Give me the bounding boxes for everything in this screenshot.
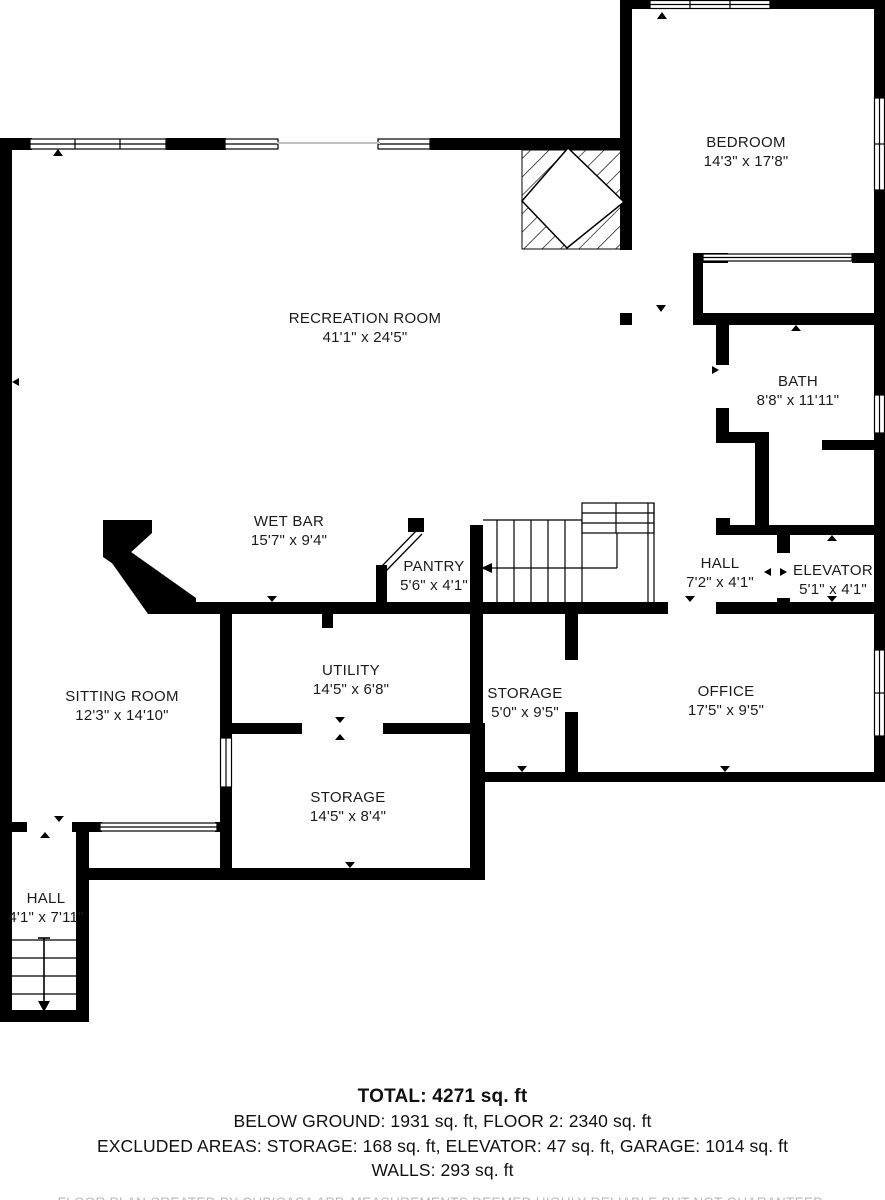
room-label-elevator: ELEVATOR 5'1" x 4'1"	[793, 561, 873, 599]
room-name: UTILITY	[313, 661, 389, 680]
room-label-bedroom: BEDROOM 14'3" x 17'8"	[704, 133, 789, 171]
room-label-wet-bar: WET BAR 15'7" x 9'4"	[251, 512, 327, 550]
excluded-areas-text: EXCLUDED AREAS: STORAGE: 168 sq. ft, ELE…	[0, 1136, 885, 1157]
room-label-office: OFFICE 17'5" x 9'5"	[688, 682, 764, 720]
staircase-main	[481, 503, 654, 608]
room-label-storage-small: STORAGE 5'0" x 9'5"	[487, 684, 562, 722]
room-label-bath: BATH 8'8" x 11'11"	[757, 372, 840, 410]
room-name: PANTRY	[400, 557, 468, 576]
room-name: STORAGE	[487, 684, 562, 703]
room-name: HALL	[8, 889, 83, 908]
room-name: ELEVATOR	[793, 561, 873, 580]
room-label-hall: HALL 7'2" x 4'1"	[686, 554, 754, 592]
total-area-text: TOTAL: 4271 sq. ft	[0, 1086, 885, 1108]
room-dimensions: 5'0" x 9'5"	[487, 703, 562, 722]
room-label-hall-lower: HALL 4'1" x 7'11"	[8, 889, 83, 927]
room-dimensions: 15'7" x 9'4"	[251, 531, 327, 550]
room-dimensions: 4'1" x 7'11"	[8, 908, 83, 927]
floor-areas-text: BELOW GROUND: 1931 sq. ft, FLOOR 2: 2340…	[0, 1111, 885, 1132]
room-dimensions: 17'5" x 9'5"	[688, 701, 764, 720]
room-dimensions: 5'6" x 4'1"	[400, 576, 468, 595]
room-dimensions: 12'3" x 14'10"	[65, 706, 179, 725]
room-dimensions: 14'3" x 17'8"	[704, 152, 789, 171]
room-name: STORAGE	[310, 788, 386, 807]
room-name: RECREATION ROOM	[289, 309, 442, 328]
room-name: SITTING ROOM	[65, 687, 179, 706]
room-dimensions: 14'5" x 6'8"	[313, 680, 389, 699]
room-name: BATH	[757, 372, 840, 391]
staircase-hall	[12, 938, 76, 1012]
room-label-recreation-room: RECREATION ROOM 41'1" x 24'5"	[289, 309, 442, 347]
room-name: HALL	[686, 554, 754, 573]
room-name: WET BAR	[251, 512, 327, 531]
room-dimensions: 7'2" x 4'1"	[686, 573, 754, 592]
room-label-sitting-room: SITTING ROOM 12'3" x 14'10"	[65, 687, 179, 725]
room-name: BEDROOM	[704, 133, 789, 152]
room-dimensions: 14'5" x 8'4"	[310, 807, 386, 826]
fireplace	[522, 148, 625, 249]
room-dimensions: 41'1" x 24'5"	[289, 328, 442, 347]
room-dimensions: 8'8" x 11'11"	[757, 391, 840, 410]
area-summary: TOTAL: 4271 sq. ft BELOW GROUND: 1931 sq…	[0, 1086, 885, 1200]
room-label-utility: UTILITY 14'5" x 6'8"	[313, 661, 389, 699]
walls-area-text: WALLS: 293 sq. ft	[0, 1160, 885, 1181]
room-label-pantry: PANTRY 5'6" x 4'1"	[400, 557, 468, 595]
floor-plan-page: BEDROOM 14'3" x 17'8" RECREATION ROOM 41…	[0, 0, 885, 1200]
disclaimer-text: FLOOR PLAN CREATED BY CUBICASA APP. MEAS…	[0, 1195, 885, 1200]
room-dimensions: 5'1" x 4'1"	[793, 580, 873, 599]
room-label-storage-large: STORAGE 14'5" x 8'4"	[310, 788, 386, 826]
room-name: OFFICE	[688, 682, 764, 701]
